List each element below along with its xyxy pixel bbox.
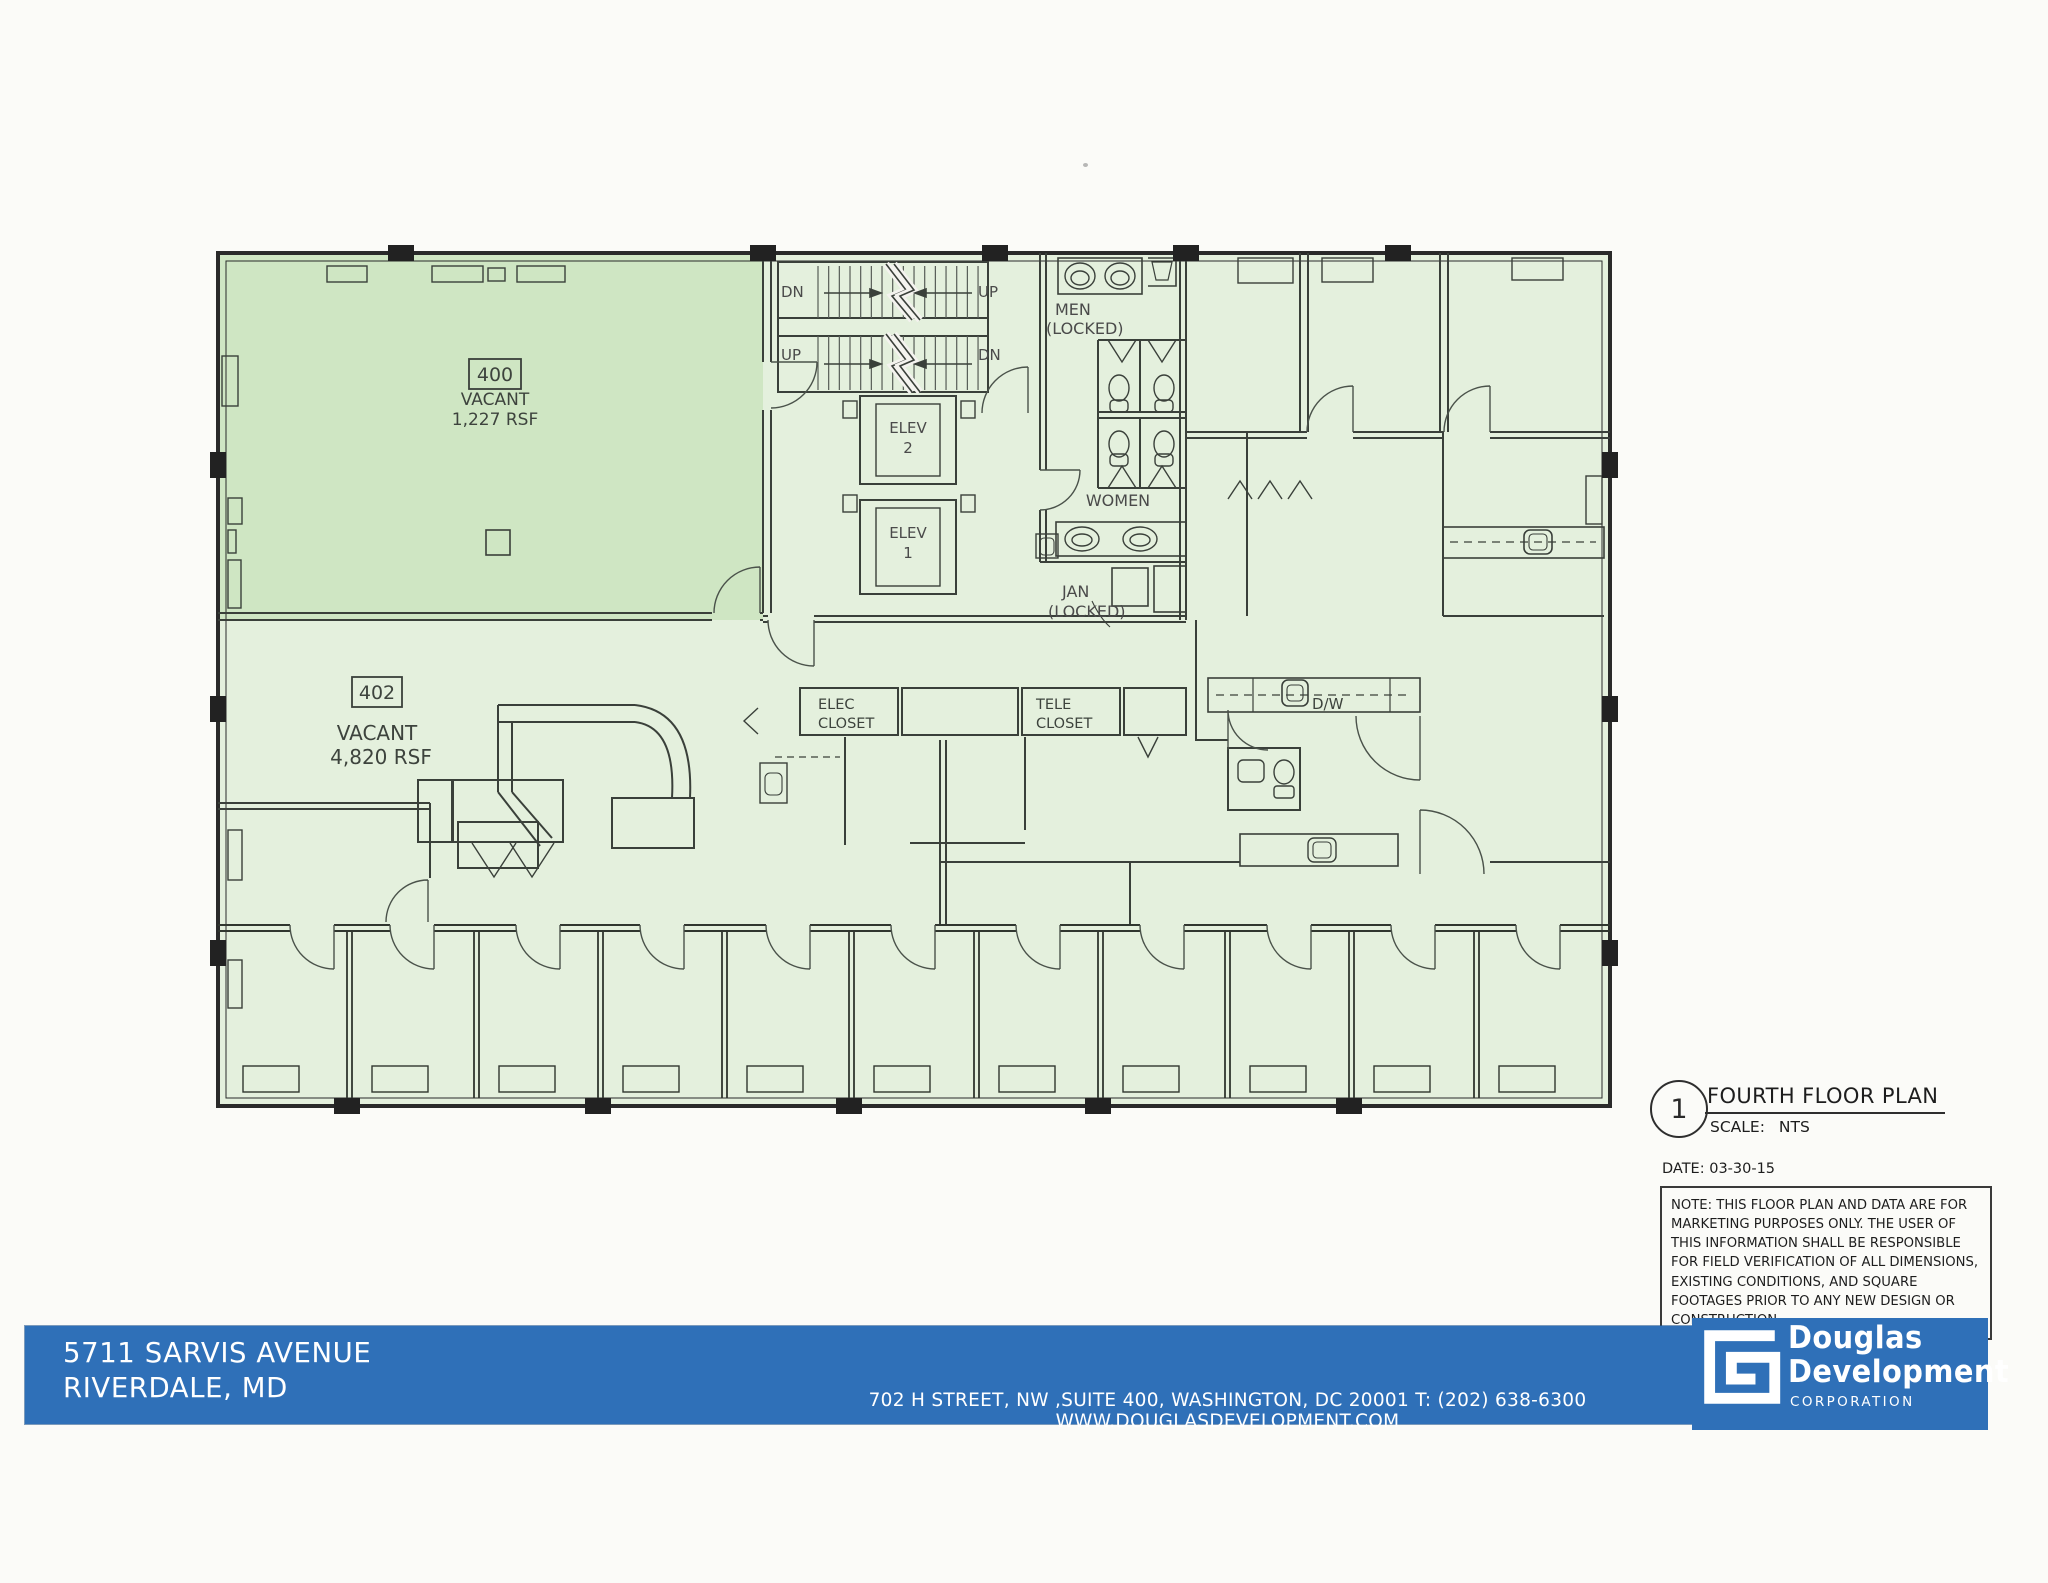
suite-400-area — [218, 253, 763, 620]
title-underline — [1705, 1112, 1945, 1114]
logo-text-line1: Douglas — [1788, 1320, 1923, 1356]
tele-closet-label-2: CLOSET — [1036, 716, 1092, 732]
stair-up-label-2: UP — [781, 346, 801, 364]
logo-text-line3: CORPORATION — [1790, 1394, 1915, 1410]
company-logo: Douglas Development CORPORATION — [1692, 1318, 1988, 1430]
elec-closet-label-1: ELEC — [818, 697, 855, 713]
elev-1-label: ELEV — [889, 524, 927, 542]
suite-402-status: VACANT — [337, 721, 418, 745]
elev-1-number: 1 — [903, 544, 913, 562]
company-contact-line: 702 H STREET, NW ,SUITE 400, WASHINGTON,… — [770, 1390, 1685, 1432]
footer-bar: 5711 SARVIS AVENUE RIVERDALE, MD 702 H S… — [25, 1326, 1713, 1424]
jan-room-label: JAN — [1061, 582, 1089, 601]
logo-text-line2: Development — [1788, 1354, 2009, 1390]
property-address-line1: 5711 SARVIS AVENUE — [63, 1336, 371, 1371]
stair-dn-label-1: DN — [781, 283, 804, 301]
men-room-locked-label: (LOCKED) — [1046, 319, 1124, 338]
scale-value: NTS — [1779, 1118, 1810, 1136]
stair-up-label-1: UP — [978, 283, 998, 301]
suite-402-area-right — [1186, 253, 1610, 620]
elev-2-label: ELEV — [889, 419, 927, 437]
elev-2-number: 2 — [903, 439, 913, 457]
elec-closet-label-2: CLOSET — [818, 716, 874, 732]
suite-400-status: VACANT — [461, 390, 530, 410]
men-room-label: MEN — [1055, 300, 1091, 319]
suite-402-number: 402 — [359, 682, 395, 704]
scan-artifact — [1083, 163, 1088, 167]
floor-plan-sheet: 400 VACANT 1,227 RSF 402 VACANT 4,820 RS… — [0, 0, 2048, 1583]
scale-label: SCALE: — [1710, 1118, 1765, 1136]
scale-note: SCALE:NTS — [1710, 1118, 1824, 1136]
stair-dn-label-2: DN — [978, 346, 1001, 364]
detail-number-bubble: 1 — [1650, 1080, 1708, 1138]
suite-400-number: 400 — [477, 364, 513, 386]
suite-400-area-label: 1,227 RSF — [452, 410, 538, 430]
detail-number: 1 — [1670, 1094, 1687, 1125]
property-address-line2: RIVERDALE, MD — [63, 1371, 371, 1406]
women-room-label: WOMEN — [1086, 491, 1150, 510]
suite-402-area-label: 4,820 RSF — [330, 745, 432, 769]
dishwasher-label: D/W — [1312, 695, 1344, 713]
douglas-development-logo-icon — [1700, 1326, 1782, 1408]
property-address: 5711 SARVIS AVENUE RIVERDALE, MD — [63, 1336, 371, 1406]
drawing-title: FOURTH FLOOR PLAN — [1707, 1084, 1938, 1108]
disclaimer-note: NOTE: THIS FLOOR PLAN AND DATA ARE FOR M… — [1660, 1186, 1992, 1340]
tele-closet-label-1: TELE — [1035, 697, 1071, 713]
jan-room-locked-label: (LOCKED) — [1048, 602, 1126, 621]
date-label: DATE: 03-30-15 — [1662, 1161, 1775, 1177]
